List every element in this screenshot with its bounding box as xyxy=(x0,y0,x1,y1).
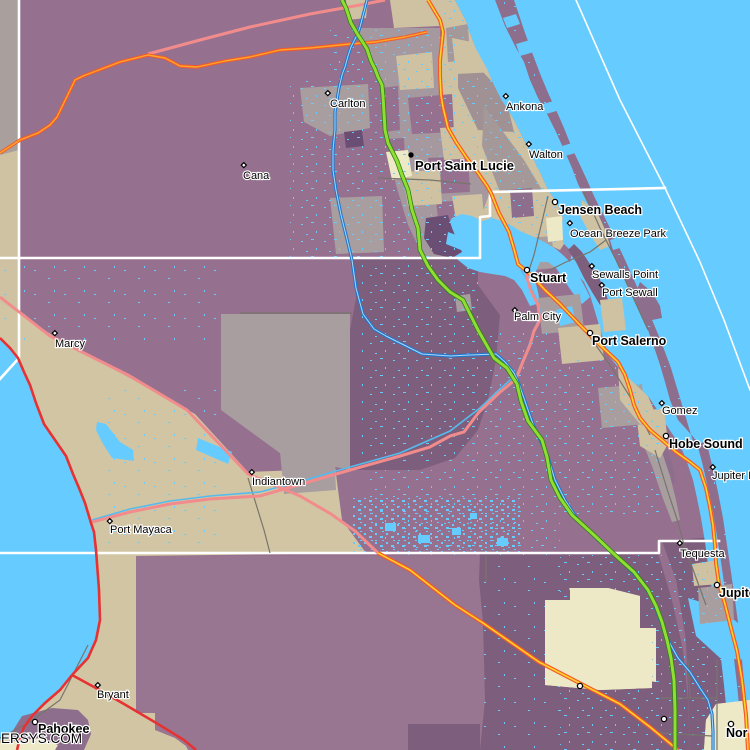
svg-text:Hobe Sound: Hobe Sound xyxy=(669,437,743,451)
svg-text:Bryant: Bryant xyxy=(97,689,129,701)
svg-text:Jensen Beach: Jensen Beach xyxy=(558,203,642,217)
svg-text:Cana: Cana xyxy=(243,170,270,182)
svg-text:Walton: Walton xyxy=(529,149,563,161)
svg-text:ERSYS.COM: ERSYS.COM xyxy=(1,731,82,746)
svg-text:Ocean Breeze Park: Ocean Breeze Park xyxy=(570,228,666,240)
svg-text:Gomez: Gomez xyxy=(662,405,697,417)
svg-text:Marcy: Marcy xyxy=(55,338,85,350)
svg-text:Tequesta: Tequesta xyxy=(680,548,726,560)
svg-text:Ankona: Ankona xyxy=(506,101,544,113)
svg-text:Sewalls Point: Sewalls Point xyxy=(592,269,658,281)
svg-text:Port Saint Lucie: Port Saint Lucie xyxy=(415,158,514,173)
svg-text:Nor: Nor xyxy=(726,726,748,740)
svg-text:Carlton: Carlton xyxy=(330,98,365,110)
svg-text:Indiantown: Indiantown xyxy=(252,476,305,488)
svg-text:Palm City: Palm City xyxy=(514,311,562,323)
svg-text:Port Mayaca: Port Mayaca xyxy=(110,524,173,536)
svg-text:Stuart: Stuart xyxy=(530,271,567,285)
svg-text:Port Sewall: Port Sewall xyxy=(602,287,658,299)
svg-text:Jupiter Is: Jupiter Is xyxy=(712,470,750,482)
svg-text:Port Salerno: Port Salerno xyxy=(592,334,667,348)
svg-text:Jupite: Jupite xyxy=(719,586,750,600)
